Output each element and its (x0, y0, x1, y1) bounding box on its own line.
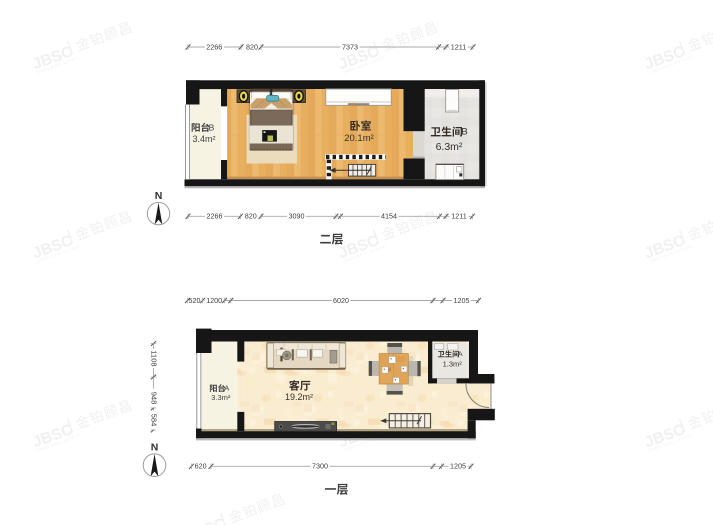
svg-text:A: A (458, 351, 463, 358)
svg-text:1108: 1108 (150, 350, 159, 366)
svg-text:820: 820 (246, 42, 258, 51)
svg-text:620: 620 (195, 462, 207, 471)
svg-text:584: 584 (150, 414, 159, 427)
svg-text:820: 820 (245, 212, 257, 221)
svg-text:1211: 1211 (451, 42, 466, 51)
svg-text:1200: 1200 (206, 296, 222, 305)
svg-text:19.2m²: 19.2m² (285, 392, 313, 402)
svg-text:1.3m²: 1.3m² (443, 360, 463, 369)
svg-text:3090: 3090 (289, 212, 305, 221)
svg-text:3.4m²: 3.4m² (192, 134, 215, 144)
svg-text:948: 948 (150, 392, 159, 405)
svg-text:6020: 6020 (333, 296, 349, 305)
svg-text:2266: 2266 (207, 212, 223, 221)
svg-text:7300: 7300 (312, 462, 328, 471)
svg-text:6.3m²: 6.3m² (436, 141, 463, 153)
svg-text:A: A (224, 384, 229, 393)
svg-text:1211: 1211 (451, 212, 466, 221)
svg-text:N: N (151, 442, 159, 454)
svg-text:3.3m²: 3.3m² (211, 393, 231, 402)
svg-text:1205: 1205 (450, 462, 466, 471)
svg-text:520: 520 (189, 296, 201, 305)
svg-text:20.1m²: 20.1m² (344, 133, 374, 144)
svg-text:B: B (461, 127, 467, 138)
svg-text:4154: 4154 (381, 212, 397, 221)
svg-text:2266: 2266 (206, 42, 222, 51)
svg-text:N: N (155, 190, 163, 202)
svg-text:B: B (209, 122, 215, 132)
svg-text:7373: 7373 (342, 42, 358, 51)
svg-text:1205: 1205 (454, 296, 470, 305)
